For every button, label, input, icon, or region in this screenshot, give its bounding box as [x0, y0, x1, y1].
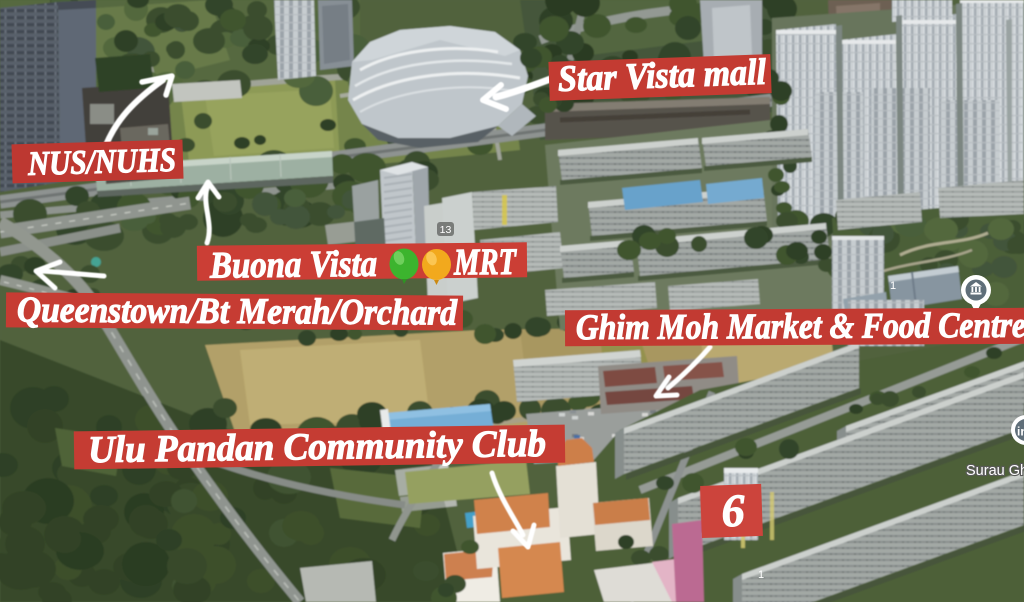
svg-text:in: in — [1017, 425, 1024, 439]
svg-text:1: 1 — [758, 569, 764, 581]
svg-text:Surau Gh: Surau Gh — [966, 463, 1024, 479]
svg-text:Queenstown/Bt Merah/Orchard: Queenstown/Bt Merah/Orchard — [17, 288, 458, 332]
svg-text:1: 1 — [890, 280, 896, 292]
svg-text:13: 13 — [440, 224, 452, 236]
svg-text:6: 6 — [721, 485, 746, 537]
svg-text:NUS/NUHS: NUS/NUHS — [27, 142, 177, 183]
svg-text:Buona Vista: Buona Vista — [209, 244, 377, 287]
svg-text:Star Vista mall: Star Vista mall — [557, 52, 767, 100]
svg-text:Ghim Moh Market & Food Centre: Ghim Moh Market & Food Centre — [576, 305, 1024, 347]
svg-text:Ulu Pandan Community Club: Ulu Pandan Community Club — [88, 423, 547, 471]
svg-text:MRT: MRT — [453, 242, 518, 284]
